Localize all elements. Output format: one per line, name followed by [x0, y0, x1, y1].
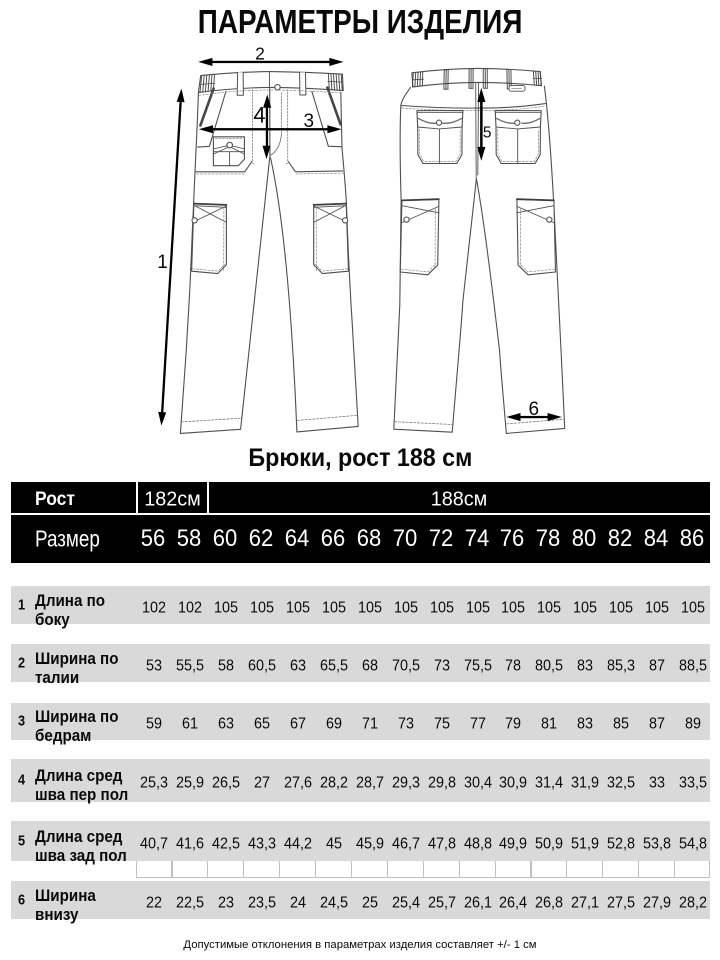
svg-text:4: 4: [253, 103, 265, 128]
svg-text:2: 2: [255, 43, 265, 63]
svg-text:6: 6: [529, 399, 540, 420]
svg-text:1: 1: [157, 252, 168, 273]
svg-text:5: 5: [483, 124, 492, 141]
svg-text:3: 3: [304, 111, 315, 132]
